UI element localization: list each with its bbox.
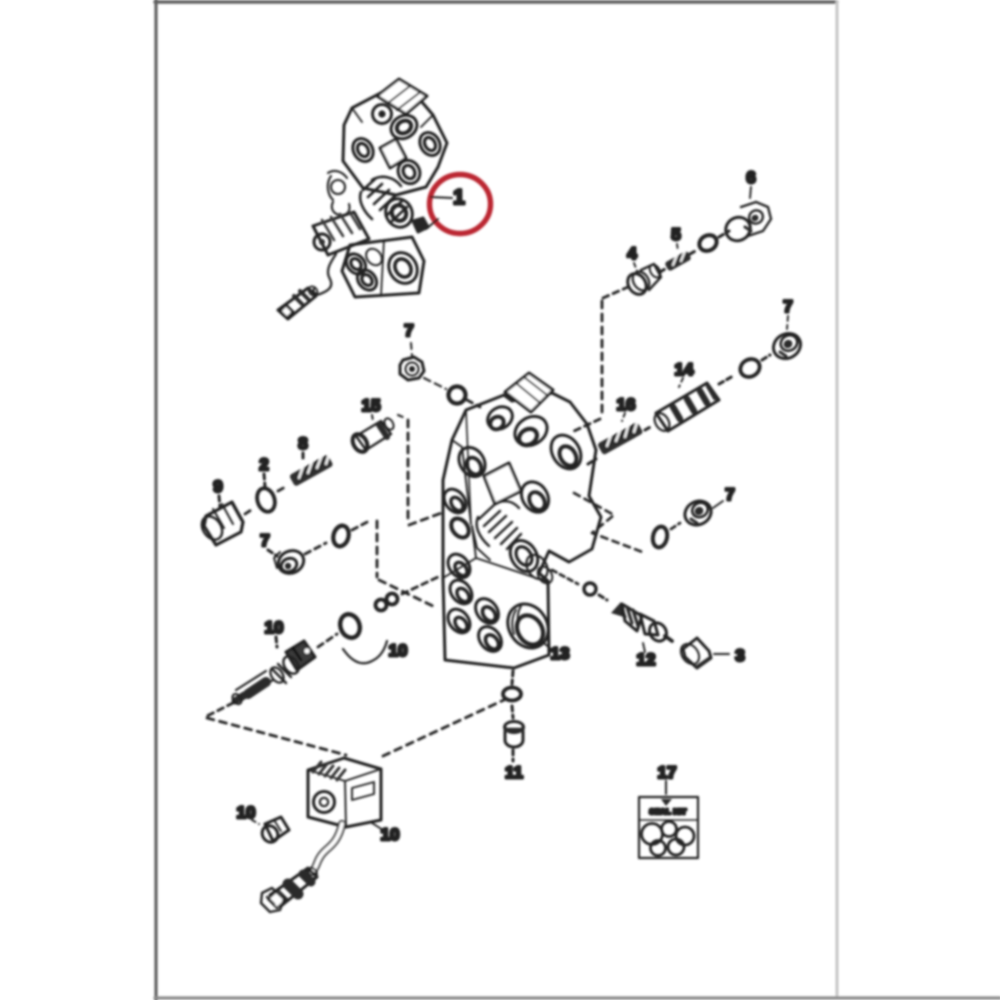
svg-text:17: 17 — [658, 763, 677, 782]
svg-text:5: 5 — [671, 225, 680, 244]
svg-text:10: 10 — [265, 618, 284, 637]
svg-text:14: 14 — [675, 360, 694, 379]
svg-text:SEAL KIT: SEAL KIT — [649, 807, 686, 816]
svg-text:12: 12 — [637, 650, 656, 669]
svg-text:7: 7 — [260, 531, 269, 550]
svg-text:10: 10 — [237, 803, 256, 822]
svg-text:8: 8 — [298, 434, 307, 453]
svg-text:13: 13 — [551, 644, 570, 663]
svg-text:16: 16 — [617, 395, 636, 414]
svg-text:15: 15 — [362, 396, 381, 415]
svg-text:7: 7 — [404, 321, 413, 340]
svg-text:2: 2 — [259, 455, 268, 474]
svg-text:10: 10 — [389, 641, 408, 660]
svg-text:9: 9 — [213, 477, 222, 496]
svg-text:6: 6 — [746, 168, 755, 187]
svg-text:11: 11 — [505, 763, 523, 782]
svg-text:1: 1 — [453, 186, 465, 209]
svg-text:4: 4 — [627, 244, 637, 263]
svg-text:7: 7 — [725, 485, 734, 504]
svg-text:10: 10 — [381, 825, 400, 844]
svg-text:3: 3 — [735, 646, 744, 665]
svg-text:7: 7 — [783, 297, 792, 316]
